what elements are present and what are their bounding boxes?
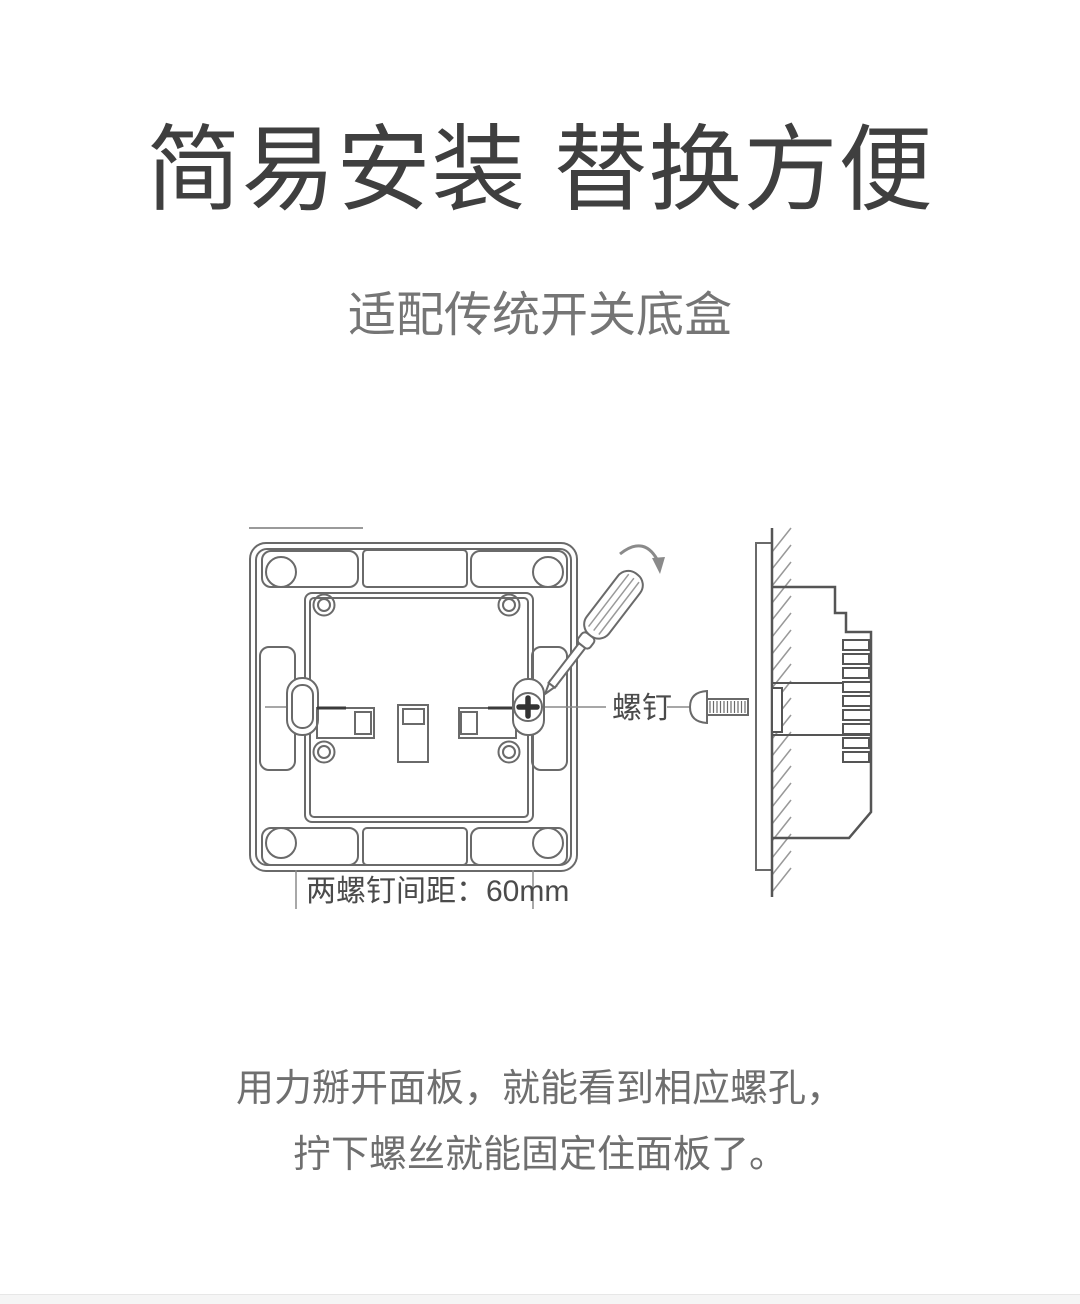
left-mount-slot (287, 678, 318, 735)
description-line-2: 拧下螺丝就能固定住面板了。 (0, 1122, 1080, 1188)
corner-hole (533, 557, 563, 587)
panel-screw (513, 679, 544, 735)
side-face-plate (756, 543, 772, 870)
description-text: 用力掰开面板，就能看到相应螺孔， 拧下螺丝就能固定住面板了。 (0, 1056, 1080, 1188)
screw-hole (314, 742, 335, 763)
screw-label: 螺钉 (612, 692, 672, 725)
description-line-1: 用力掰开面板，就能看到相应螺孔， (0, 1056, 1080, 1122)
wall-side-view (756, 528, 871, 897)
rotation-arrow-icon (620, 546, 665, 574)
corner-hole (266, 557, 296, 587)
page-subtitle: 适配传统开关底盒 (0, 288, 1080, 344)
page-title: 简易安装 替换方便 (0, 118, 1080, 222)
installation-diagram: 螺钉 两螺钉间距：60mm (0, 500, 1080, 930)
panel-inner-parts (317, 705, 516, 762)
corner-hole (266, 828, 296, 858)
corner-hole (533, 828, 563, 858)
dimension-label: 两螺钉间距：60mm (306, 875, 569, 908)
screw-hole (499, 742, 520, 763)
screw-icon (690, 691, 748, 723)
vent-fins (843, 640, 871, 762)
side-screw-boss (772, 688, 782, 732)
next-section-strip (0, 1294, 1080, 1304)
